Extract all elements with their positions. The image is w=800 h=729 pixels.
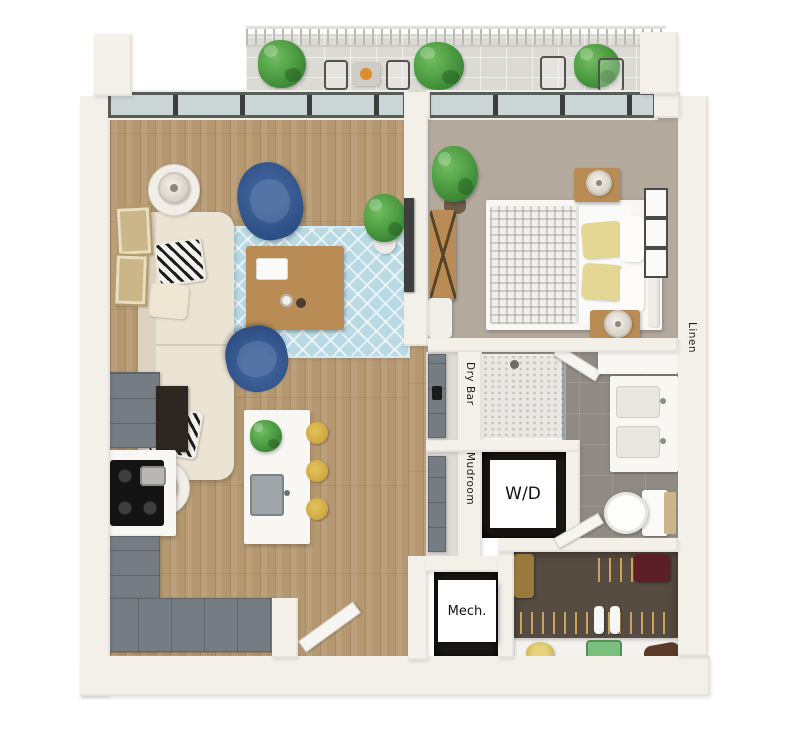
- dry-bar-label: Dry Bar: [464, 362, 476, 405]
- wall-fin-top-right: [640, 32, 678, 94]
- mech-unit: Mech.: [438, 580, 496, 642]
- sink-basin: [616, 386, 660, 418]
- wall-nook-divider: [426, 440, 580, 452]
- bar-stool: [306, 460, 328, 482]
- hanging-shirt: [594, 606, 604, 634]
- island-sink: [250, 474, 284, 516]
- sofa-cushion-divider: [156, 344, 234, 346]
- balcony-railing: [246, 26, 666, 47]
- bedroom-plant: [432, 146, 478, 202]
- serving-tray: [256, 258, 288, 280]
- living-room-window: [108, 92, 406, 118]
- wall-bathroom-top: [428, 338, 678, 352]
- hanging-garment: [634, 554, 670, 582]
- kitchen-cabinet: [106, 372, 160, 448]
- table-lamp: [158, 172, 190, 204]
- patio-flowers: [360, 68, 372, 80]
- vanity: [610, 376, 678, 472]
- floor-plan: Linen Dry Bar Mudroom W/D Mech.: [0, 0, 800, 729]
- wall-art: [115, 205, 154, 257]
- faucet: [660, 398, 666, 404]
- wall-entry-stub: [272, 598, 298, 658]
- sink-basin: [616, 426, 660, 458]
- living-room-plant: [364, 194, 406, 242]
- balcony-plant: [258, 40, 306, 88]
- bar-stool: [306, 422, 328, 444]
- coffee-table: [246, 246, 344, 330]
- throw-pillow: [149, 282, 190, 319]
- wall-window-pier: [404, 92, 430, 118]
- towel: [664, 492, 676, 534]
- shower-glass-panel: [562, 354, 566, 440]
- coffee-cup: [296, 298, 306, 308]
- pillow-yellow: [581, 220, 624, 259]
- patio-chair: [386, 60, 410, 90]
- wd-unit: W/D: [490, 460, 556, 528]
- wall-left: [80, 96, 110, 696]
- mudroom-label: Mudroom: [464, 452, 476, 505]
- pillow-white: [620, 216, 644, 262]
- wall-drybar-mudroom: Dry Bar Mudroom: [458, 352, 482, 562]
- mudroom-bench: [428, 456, 446, 552]
- frying-pan: [140, 466, 166, 486]
- bedroom-sliding-door: [404, 198, 414, 292]
- shower-floor: [482, 354, 566, 440]
- bedroom-bench: [428, 298, 452, 338]
- hanging-shirt: [610, 606, 620, 634]
- patio-chair: [324, 60, 348, 90]
- bar-stool: [306, 498, 328, 520]
- wall-entry-right: [408, 556, 428, 660]
- bedside-lamp: [604, 310, 632, 338]
- patio-chair: [598, 58, 624, 92]
- linen-label: Linen: [686, 322, 698, 353]
- patio-table: [352, 62, 380, 86]
- bedside-lamp: [586, 170, 612, 196]
- faucet: [660, 438, 666, 444]
- wall-right: Linen: [678, 96, 708, 656]
- toilet-bowl: [604, 492, 648, 534]
- patio-chair: [540, 56, 566, 90]
- wall-window-pier: [654, 92, 680, 118]
- wall-fin-top-left: [94, 34, 132, 96]
- wall-bottom: [80, 656, 710, 696]
- gallery-frame: [644, 248, 668, 278]
- gallery-frame: [644, 188, 668, 218]
- coffee-maker: [432, 386, 442, 400]
- wall-art: [113, 253, 149, 306]
- throw-pillow-striped: [153, 237, 207, 287]
- island-faucet: [284, 490, 290, 496]
- bedroom-dresser: [430, 210, 456, 300]
- balcony-plant: [414, 42, 464, 90]
- wall-mech-closet: [498, 548, 514, 658]
- pillow-white: [620, 266, 644, 312]
- hanging-garment: [514, 554, 534, 598]
- wall-closet-top: [498, 538, 678, 552]
- wd-label: W/D: [505, 484, 541, 504]
- mech-label: Mech.: [448, 604, 487, 619]
- kitchen-cabinet: [106, 598, 276, 652]
- range-hood: [156, 386, 188, 452]
- hallway-floor: [408, 346, 428, 560]
- island-plant: [250, 420, 282, 452]
- coffee-cup: [280, 294, 293, 307]
- duvet: [490, 206, 576, 324]
- gallery-frame: [644, 218, 668, 248]
- shower-head: [510, 360, 519, 369]
- bedroom-window: [428, 92, 656, 118]
- pillow-yellow: [581, 263, 623, 302]
